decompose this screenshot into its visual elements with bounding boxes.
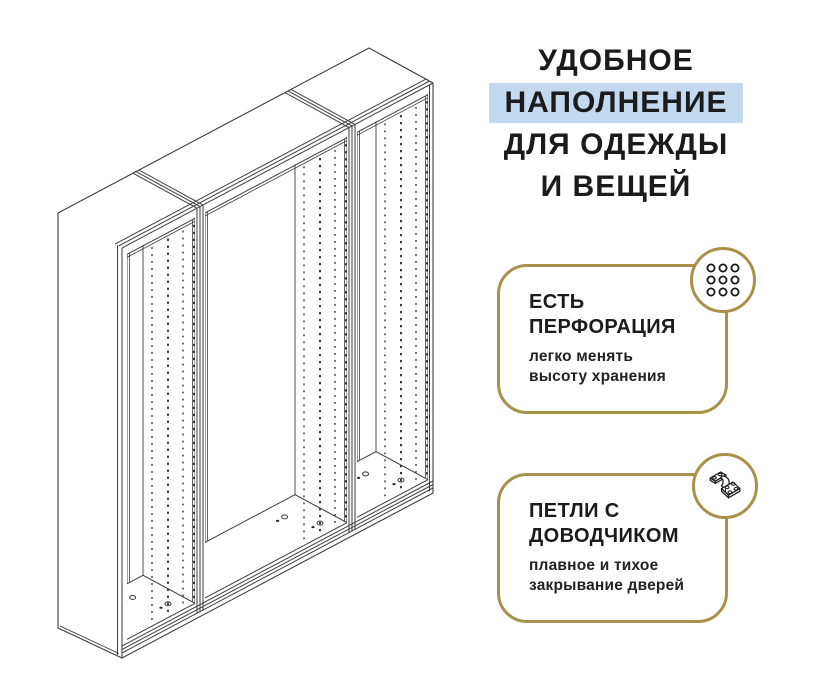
feature-title: ПЕТЛИ С ДОВОДЧИКОМ — [529, 499, 709, 549]
feature-title: ЕСТЬ ПЕРФОРАЦИЯ — [529, 290, 709, 340]
title-highlight: НАПОЛНЕНИЕ — [489, 83, 742, 123]
perforation-holes-icon — [703, 260, 743, 300]
title-line-2: НАПОЛНЕНИЕ — [482, 82, 750, 124]
product-infographic-page: УДОБНОЕ НАПОЛНЕНИЕ ДЛЯ ОДЕЖДЫ И ВЕЩЕЙ ЕС… — [0, 0, 816, 700]
feature-badge-hinge — [692, 453, 758, 519]
feature-badge-perforation — [690, 247, 756, 313]
soft-close-hinge-icon — [704, 465, 746, 507]
feature-subtitle: плавное и тихое закрывание дверей — [529, 556, 709, 596]
title-line-1: УДОБНОЕ — [482, 40, 750, 82]
title-line-3: ДЛЯ ОДЕЖДЫ — [482, 124, 750, 166]
feature-subtitle: легко менять высоту хранения — [529, 347, 709, 387]
wardrobe-frame-illustration — [0, 0, 480, 700]
page-title: УДОБНОЕ НАПОЛНЕНИЕ ДЛЯ ОДЕЖДЫ И ВЕЩЕЙ — [482, 40, 750, 208]
title-line-4: И ВЕЩЕЙ — [482, 166, 750, 208]
